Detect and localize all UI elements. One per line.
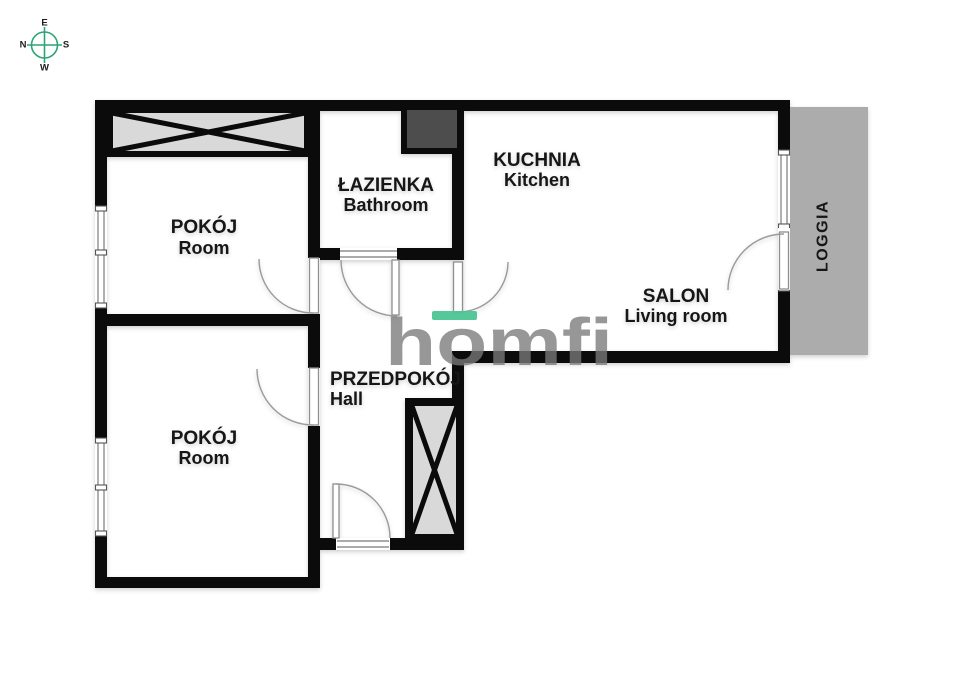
- floor-plan-page: E S W N: [0, 0, 960, 679]
- brand-watermark: homfi: [385, 305, 613, 380]
- wardrobe-top-room: [110, 110, 307, 154]
- wall-segment: [95, 308, 107, 440]
- door-swing-arc: [257, 369, 313, 425]
- door-swing-arc: [728, 234, 784, 290]
- duct-box: [404, 107, 460, 151]
- room-top-sublabel: Room: [179, 238, 230, 258]
- wall-segment: [778, 290, 790, 363]
- bathroom-sublabel: Bathroom: [344, 195, 429, 215]
- hall-sublabel: Hall: [330, 389, 363, 409]
- compass-west-label: W: [40, 63, 49, 74]
- kitchen-sublabel: Kitchen: [504, 170, 570, 190]
- window-cap: [96, 206, 107, 211]
- living-room-sublabel: Living room: [625, 306, 728, 326]
- door-top-room: [259, 258, 320, 314]
- door-leaf: [310, 368, 319, 425]
- window-cap: [96, 438, 107, 443]
- door-swing-arc: [336, 484, 390, 538]
- door-swing-arc: [259, 259, 313, 313]
- compass-east-label: E: [41, 18, 47, 29]
- door-entrance: [333, 484, 390, 550]
- window-opening: [95, 208, 107, 308]
- room-top-label: POKÓJ: [171, 216, 238, 238]
- floor-plan-svg: E S W N: [0, 0, 960, 679]
- window-top-room: [95, 206, 107, 308]
- wall-segment: [95, 100, 107, 208]
- window-bottom-room: [95, 438, 107, 536]
- door-balcony: [728, 228, 790, 290]
- wall-segment: [778, 100, 790, 152]
- room-bottom-label: POKÓJ: [171, 427, 238, 449]
- door-leaf: [333, 484, 339, 538]
- door-bottom-room: [257, 368, 320, 426]
- wall-segment: [95, 577, 319, 588]
- bathroom-label: ŁAZIENKA: [338, 175, 434, 196]
- kitchen-label: KUCHNIA: [493, 150, 581, 171]
- door-leaf: [310, 258, 319, 313]
- wardrobe-hall: [409, 402, 460, 538]
- room-bottom-sublabel: Room: [179, 448, 230, 468]
- door-leaf: [780, 232, 789, 289]
- wall-segment: [308, 538, 336, 550]
- loggia-label: LOGGIA: [815, 200, 832, 272]
- window-cap: [779, 150, 790, 155]
- compass-north-label: N: [20, 40, 27, 51]
- door-opening: [340, 248, 397, 260]
- wall-segment: [308, 314, 320, 368]
- watermark-text: homfi: [385, 305, 613, 380]
- door-opening: [336, 538, 390, 550]
- wall-segment: [308, 426, 320, 588]
- living-room-label: SALON: [643, 286, 710, 307]
- wall-segment: [95, 314, 320, 326]
- compass-rose: E S W N: [20, 18, 70, 74]
- window-opening: [778, 152, 790, 228]
- window-cap: [96, 303, 107, 308]
- window-cap: [96, 485, 107, 490]
- compass-south-label: S: [63, 40, 69, 51]
- window-cap: [96, 250, 107, 255]
- watermark-green-bar-icon: [432, 311, 477, 320]
- window-cap: [96, 531, 107, 536]
